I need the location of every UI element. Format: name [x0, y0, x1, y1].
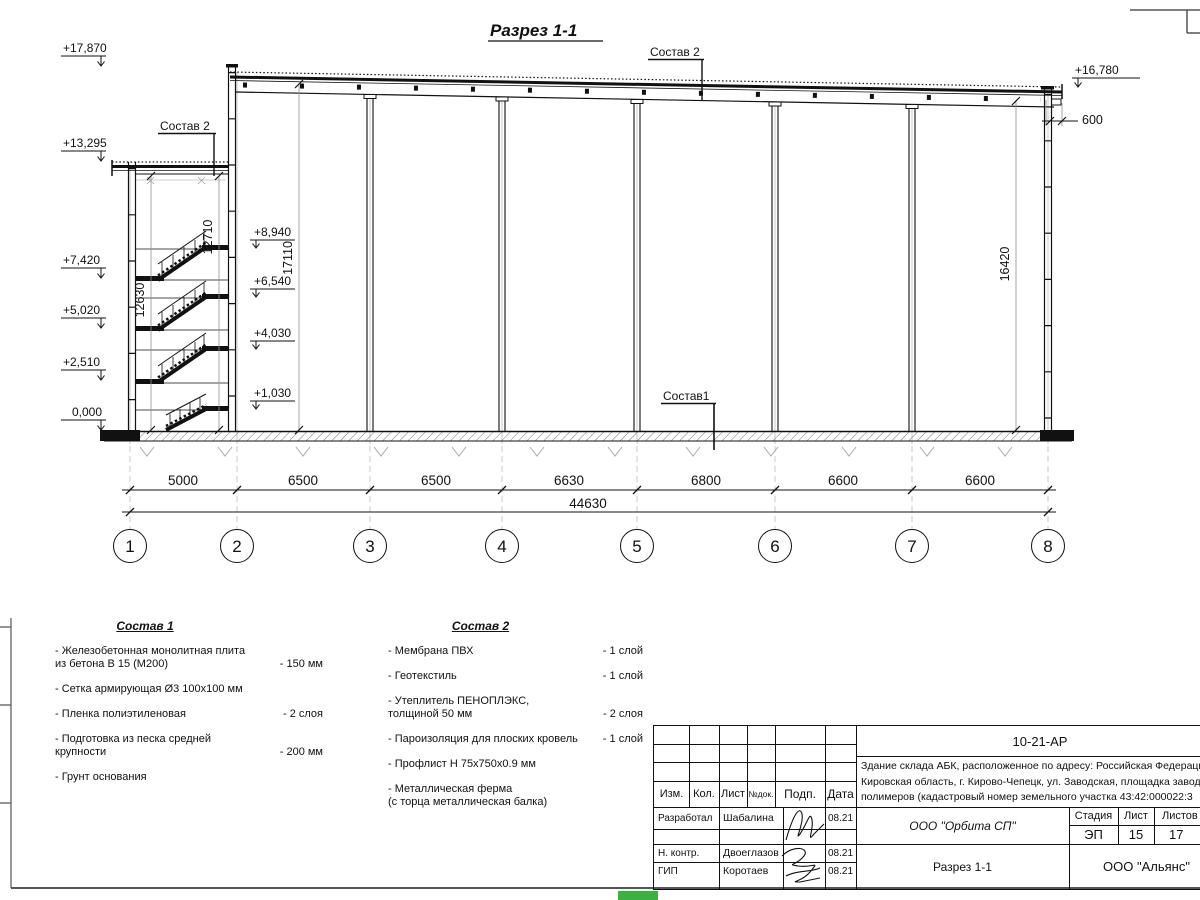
svg-text:+4,030: +4,030	[254, 326, 291, 340]
signature-gip	[776, 842, 828, 888]
svg-text:+2,510: +2,510	[63, 355, 100, 369]
sheet-title: Разрез 1-1	[856, 844, 1069, 889]
dim-12710: 12710	[201, 220, 215, 255]
sheet-value: 15	[1118, 825, 1154, 844]
svg-text:6800: 6800	[691, 473, 721, 488]
svg-text:+17,870: +17,870	[63, 41, 107, 55]
note-item: - Пароизоляция для плоских кровель - 1 с…	[388, 733, 643, 746]
date-developer: 08.21	[825, 807, 856, 829]
svg-text:+16,780: +16,780	[1075, 63, 1119, 77]
drawing-title: Разрез 1-1	[488, 21, 603, 41]
rev-header-ndok: №док.	[747, 781, 775, 807]
dim-600: 600	[1082, 113, 1103, 127]
svg-text:5: 5	[632, 537, 641, 556]
date-gip: 08.21	[825, 862, 856, 880]
note-item: - Металлическая ферма (с торца металличе…	[388, 783, 643, 809]
role-developer: Разработал	[658, 807, 719, 829]
svg-text:6630: 6630	[554, 473, 584, 488]
svg-text:Состав 2: Состав 2	[160, 119, 210, 133]
name-developer: Шабалина	[723, 807, 783, 829]
ground-break-marks	[140, 447, 1012, 456]
note-item: - Грунт основания	[55, 771, 323, 784]
note-item: - Пленка полиэтиленовая - 2 слоя	[55, 708, 323, 721]
name-ncontr: Двоеглазов	[723, 844, 783, 862]
svg-text:8: 8	[1043, 537, 1052, 556]
elevation-mark-right: +16,780 600	[1042, 63, 1140, 127]
svg-text:+1,030: +1,030	[254, 386, 291, 400]
svg-text:7: 7	[907, 537, 916, 556]
svg-text:+6,540: +6,540	[254, 274, 291, 288]
org-name: ООО "Орбита СП"	[856, 807, 1069, 844]
main-roof	[230, 72, 1062, 107]
rev-header-list: Лист	[719, 781, 747, 807]
svg-text:0,000: 0,000	[72, 405, 102, 419]
role-ncontr: Н. контр.	[658, 844, 719, 862]
span-dimensions: 5000 6500 6500 6630 6800 6600 6600 44630	[122, 473, 1056, 516]
vertical-dimensions: 12630 12710 17110 16420	[133, 80, 1020, 434]
svg-text:6: 6	[770, 537, 779, 556]
note-item: - Профлист Н 75х750х0.9 мм	[388, 758, 643, 771]
abk-roof	[112, 160, 228, 184]
svg-text:3: 3	[365, 537, 374, 556]
floor-slab	[100, 430, 1074, 456]
rev-header-data: Дата	[825, 781, 856, 807]
svg-text:+8,940: +8,940	[254, 225, 291, 239]
svg-text:6500: 6500	[421, 473, 451, 488]
svg-text:1: 1	[125, 537, 134, 556]
svg-text:2: 2	[232, 537, 241, 556]
elevation-marks-left: +17,870 +13,295 +7,420 +5,020 +2,510 0,0…	[61, 41, 107, 430]
rev-header-kol: Кол.	[689, 781, 719, 807]
svg-text:6600: 6600	[965, 473, 995, 488]
note-item: - Геотекстиль - 1 слой	[388, 670, 643, 683]
stage-value: ЭП	[1069, 825, 1118, 844]
svg-text:6500: 6500	[288, 473, 318, 488]
note-item: - Подготовка из песка средней крупности …	[55, 733, 323, 759]
hall-columns	[364, 95, 918, 432]
svg-text:+13,295: +13,295	[63, 136, 107, 150]
notes-sostav-2: Состав 2 - Мембрана ПВХ - 1 слой - Геоте…	[388, 620, 643, 821]
svg-text:Разрез 1-1: Разрез 1-1	[490, 21, 577, 40]
sheets-value: 17	[1154, 825, 1200, 844]
callout-sostav2-main-roof: Состав 2	[648, 45, 704, 101]
svg-text:+5,020: +5,020	[63, 303, 100, 317]
notes-sostav-1: Состав 1 - Железобетонная монолитная пли…	[55, 620, 323, 796]
svg-text:6600: 6600	[828, 473, 858, 488]
title-block: Изм. Кол. Лист №док. Подп. Дата Разработ…	[653, 725, 1200, 890]
dim-17110: 17110	[281, 241, 295, 275]
notes2-heading: Состав 2	[388, 620, 573, 633]
project-description: Здание склада АБК, расположенное по адре…	[861, 759, 1200, 806]
note-item: - Железобетонная монолитная плита из бет…	[55, 645, 323, 671]
staircase	[136, 231, 228, 430]
svg-text:44630: 44630	[569, 496, 607, 511]
role-gip: ГИП	[658, 862, 719, 880]
axis-grid-lines	[130, 72, 1048, 530]
dim-12630: 12630	[133, 283, 147, 318]
sheets-label: Листов	[1154, 807, 1200, 825]
note-item: - Мембрана ПВХ - 1 слой	[388, 645, 643, 658]
svg-text:4: 4	[497, 537, 506, 556]
green-marker	[618, 891, 658, 900]
rev-header-izm: Изм.	[654, 781, 689, 807]
hall-right-wall	[1041, 86, 1054, 431]
notes1-heading: Состав 1	[55, 620, 235, 633]
svg-text:Состав1: Состав1	[663, 389, 710, 403]
svg-text:Состав 2: Состав 2	[650, 45, 700, 59]
date-ncontr: 08.21	[825, 844, 856, 862]
note-item: - Сетка армирующая Ø3 100х100 мм	[55, 683, 323, 696]
stair-flights	[158, 231, 206, 430]
doc-number: 10-21-АР	[856, 726, 1200, 756]
stair-landings	[136, 245, 228, 411]
sheet-label: Лист	[1118, 807, 1154, 825]
signature-developer	[780, 804, 828, 846]
dim-16420: 16420	[998, 247, 1012, 282]
stage-label: Стадия	[1069, 807, 1118, 825]
name-gip: Коротаев	[723, 862, 783, 880]
svg-text:+7,420: +7,420	[63, 253, 100, 267]
contractor-name: ООО "Альянс"	[1069, 844, 1200, 889]
svg-text:5000: 5000	[168, 473, 198, 488]
note-item: - Утеплитель ПЕНОПЛЭКС, толщиной 50 мм -…	[388, 695, 643, 721]
callouts: Состав 2 Состав 2 Состав1	[158, 45, 716, 450]
axis-bubbles: 1 2 3 4 5 6 7 8	[114, 530, 1065, 563]
